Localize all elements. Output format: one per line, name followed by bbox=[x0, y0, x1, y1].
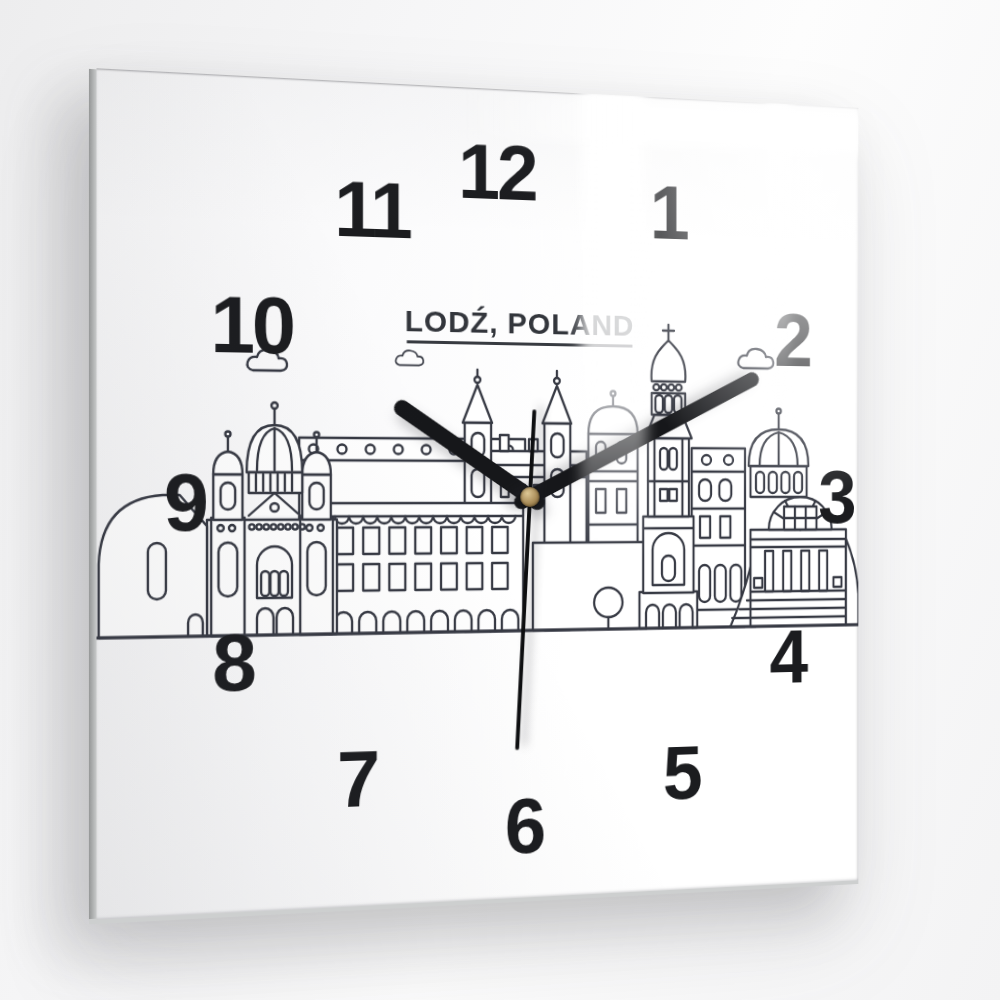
cloud-icon bbox=[738, 349, 773, 369]
tenement-block bbox=[329, 503, 523, 634]
orthodox-tower bbox=[639, 324, 697, 628]
clock-numeral-7: 7 bbox=[337, 739, 377, 819]
clock-center-pin bbox=[520, 487, 539, 507]
clock-numeral-12: 12 bbox=[458, 132, 536, 212]
clock-numeral-3: 3 bbox=[818, 460, 853, 534]
clock-numeral-1: 1 bbox=[650, 174, 687, 251]
cathedral-building bbox=[207, 402, 337, 636]
glass-clock-panel: LODŹ, POLAND 12 1 2 3 4 5 6 7 8 9 10 11 bbox=[97, 68, 859, 920]
cloud-icon bbox=[396, 350, 424, 365]
clock-numeral-11: 11 bbox=[334, 169, 410, 250]
clock-numeral-9: 9 bbox=[164, 462, 206, 542]
clock-numeral-6: 6 bbox=[505, 787, 544, 865]
clock-face: LODŹ, POLAND 12 1 2 3 4 5 6 7 8 9 10 11 bbox=[97, 68, 859, 920]
clock-numeral-8: 8 bbox=[212, 622, 253, 702]
clock-numeral-10: 10 bbox=[210, 284, 293, 365]
plain-wall bbox=[533, 542, 647, 630]
clock-numeral-2: 2 bbox=[774, 303, 810, 378]
clock-numeral-4: 4 bbox=[770, 619, 806, 694]
right-back-building bbox=[692, 448, 745, 627]
clock-numeral-5: 5 bbox=[663, 734, 700, 811]
panel-left-edge bbox=[89, 69, 97, 922]
city-title: LODŹ, POLAND bbox=[405, 306, 634, 341]
